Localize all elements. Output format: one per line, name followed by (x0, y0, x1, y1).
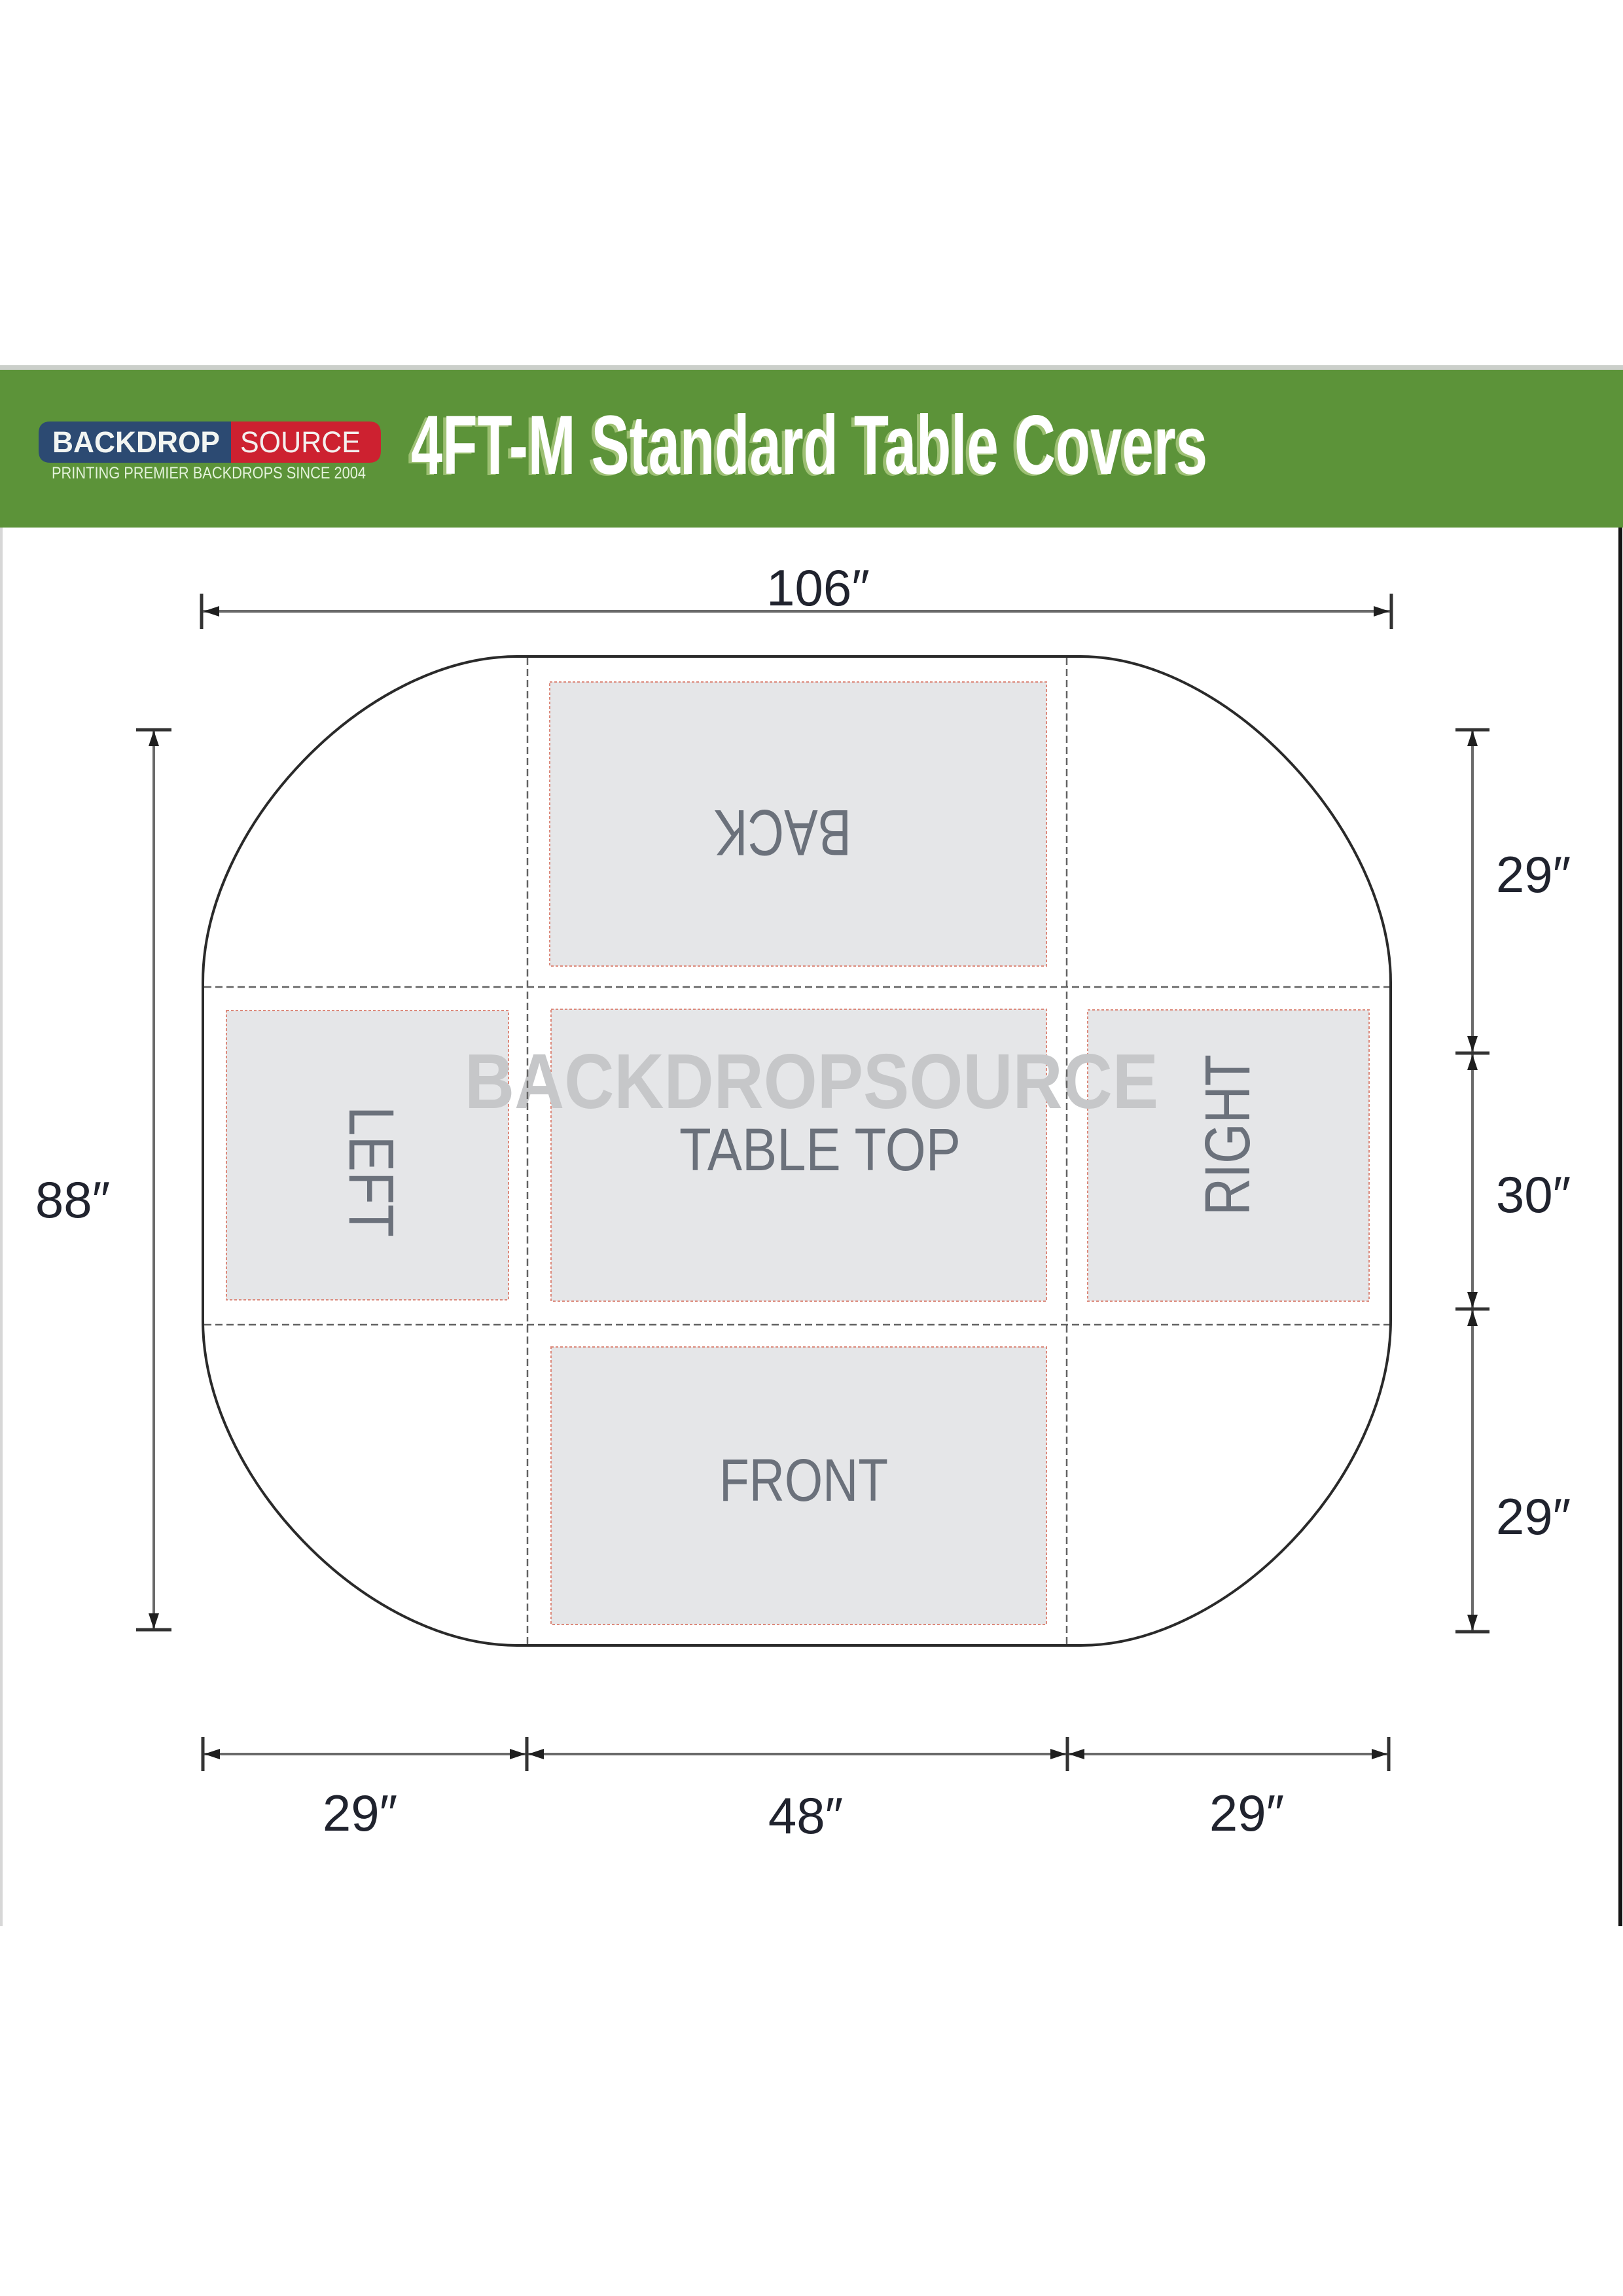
svg-text:4FT-M Standard Table Covers: 4FT-M Standard Table Covers (411, 399, 1207, 492)
svg-text:BACKDROP: BACKDROP (52, 425, 220, 459)
svg-text:29″: 29″ (1496, 1488, 1571, 1545)
svg-text:30″: 30″ (1496, 1166, 1571, 1223)
svg-text:29″: 29″ (323, 1784, 397, 1842)
svg-text:LEFT: LEFT (336, 1106, 407, 1237)
svg-text:SOURCE: SOURCE (240, 425, 361, 459)
svg-text:48″: 48″ (768, 1787, 843, 1844)
svg-text:BACKDROPSOURCE: BACKDROPSOURCE (465, 1038, 1158, 1125)
svg-text:RIGHT: RIGHT (1192, 1054, 1263, 1215)
svg-text:29″: 29″ (1496, 846, 1571, 903)
svg-text:FRONT: FRONT (719, 1447, 888, 1514)
svg-text:TABLE TOP: TABLE TOP (679, 1117, 961, 1183)
svg-text:106″: 106″ (766, 559, 870, 617)
svg-text:PRINTING PREMIER BACKDROPS SIN: PRINTING PREMIER BACKDROPS SINCE 2004 (52, 464, 366, 482)
svg-text:29″: 29″ (1209, 1784, 1284, 1842)
svg-text:BACK: BACK (714, 797, 851, 869)
svg-text:88″: 88″ (35, 1171, 110, 1229)
